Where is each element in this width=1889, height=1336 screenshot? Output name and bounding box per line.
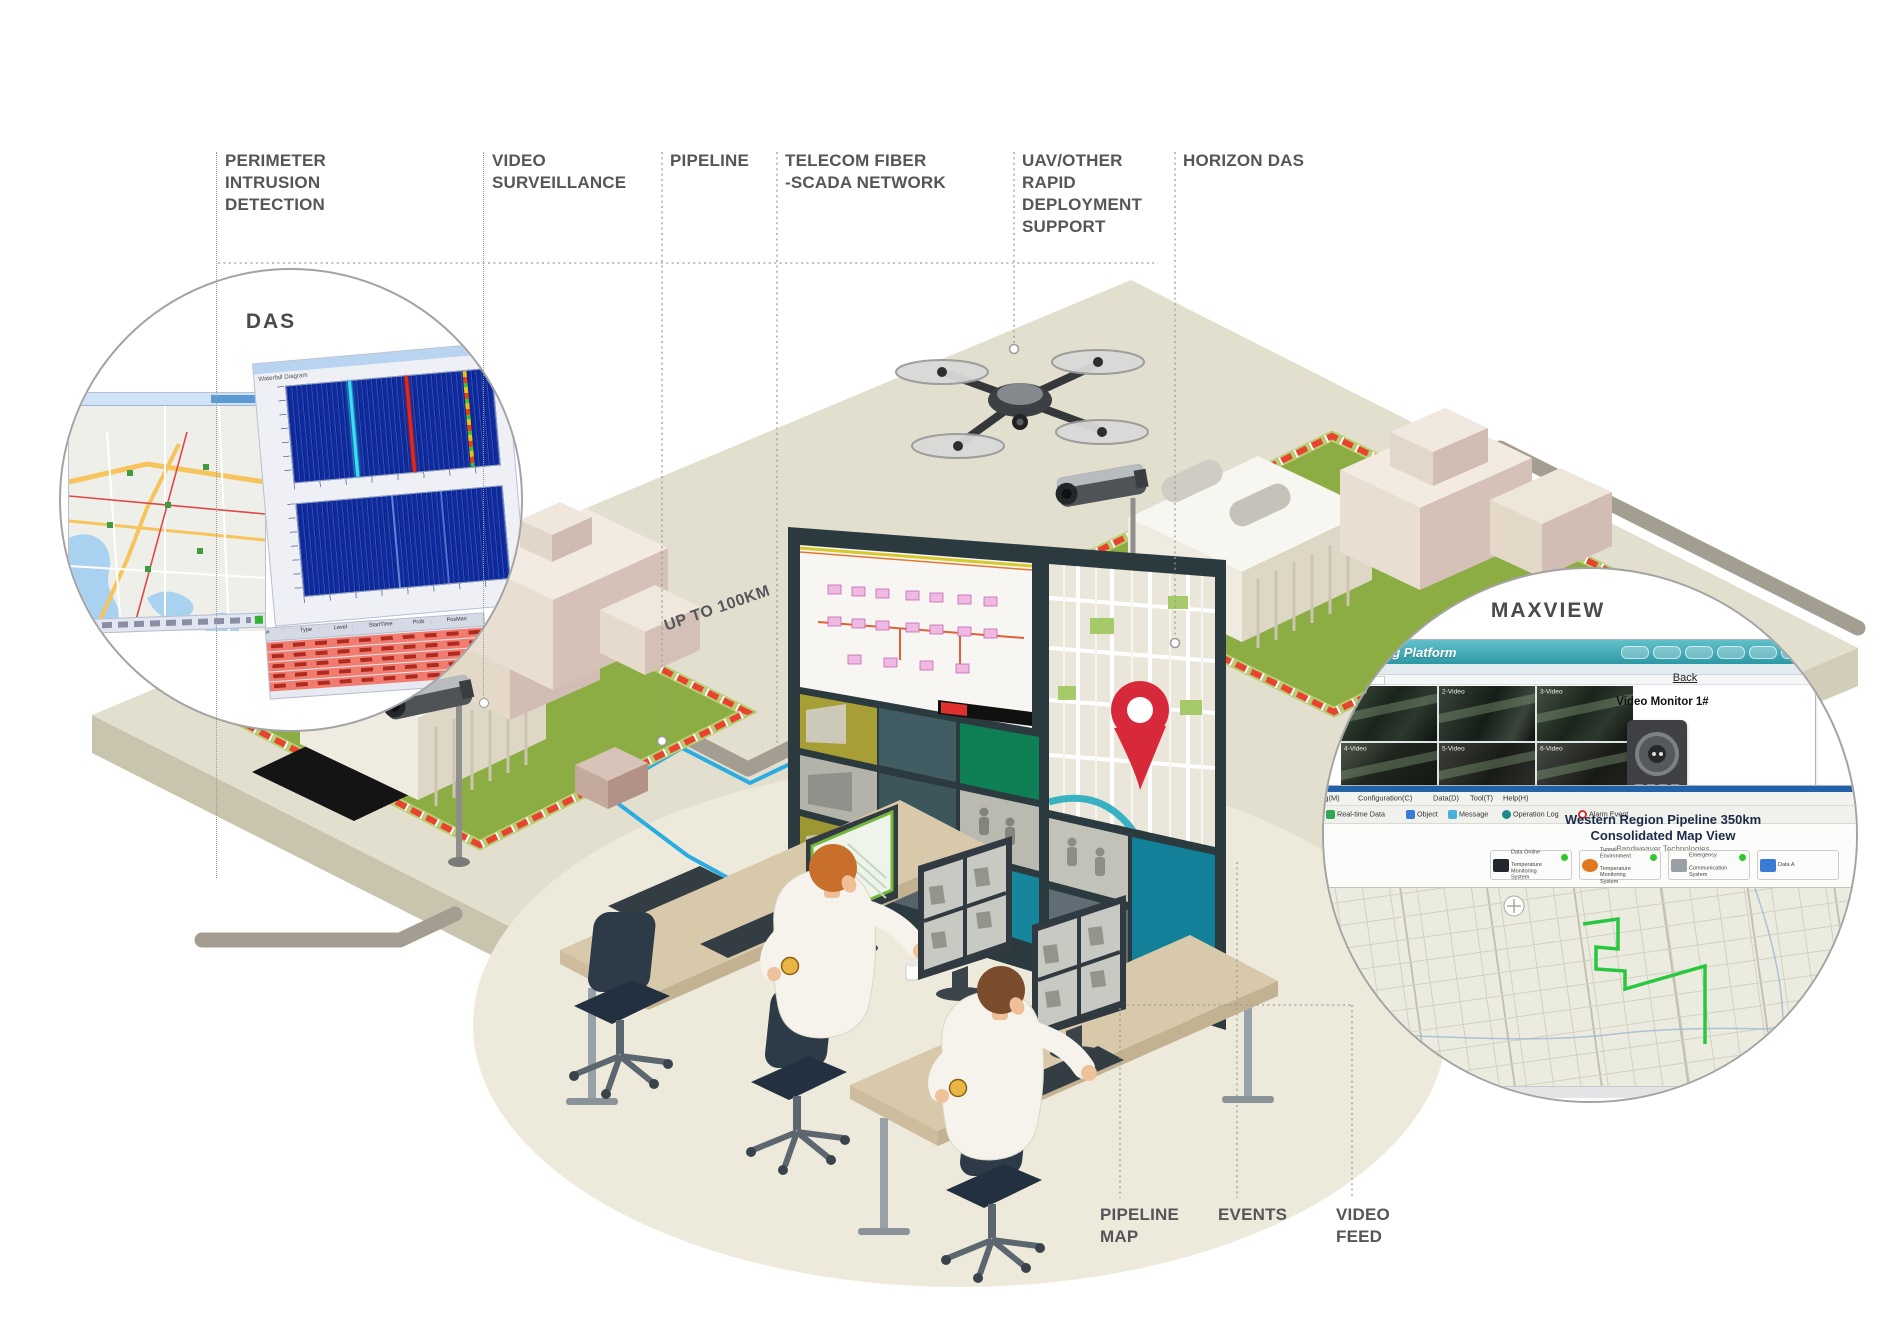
menu-item[interactable]: Help(H)	[1503, 794, 1528, 802]
camera-icon	[1582, 859, 1598, 872]
col-prob: Prob	[412, 618, 431, 626]
window-titlebar: Monitoring Platform	[1322, 640, 1815, 664]
label-pipeline-map: PIPELINE MAP	[1100, 1204, 1210, 1248]
map-view-window: File(F) Monitoring(M) Configuration(C) D…	[1322, 785, 1858, 1103]
das-callout: DAS	[59, 268, 523, 732]
toolbar-item-realtime-data[interactable]: Real-time Data	[1326, 809, 1404, 820]
ptz-joystick-control[interactable]	[1627, 720, 1687, 794]
maxview-title: MAXVIEW	[1448, 599, 1648, 623]
status-ok-icon	[255, 616, 263, 624]
video-tile-label: 3-Video	[1540, 688, 1563, 695]
monitor-icon	[1493, 859, 1509, 872]
titlebar-buttons	[1621, 646, 1809, 659]
message-icon	[1448, 810, 1457, 819]
status-card-emergency-comms[interactable]: Emergency Communication System	[1668, 850, 1750, 880]
video-tile[interactable]: 3-Video	[1537, 686, 1633, 741]
pipeline-security-diagram: PERIMETER INTRUSION DETECTION VIDEO SURV…	[0, 0, 1889, 1336]
maxview-callout: MAXVIEW Monitoring Platform 1-Video	[1322, 567, 1858, 1103]
label-pipeline: PIPELINE	[670, 150, 770, 172]
status-green-dot	[1739, 854, 1746, 861]
toolbar-pill-button[interactable]	[1653, 646, 1681, 659]
das-title: DAS	[211, 310, 331, 334]
label-video-feed: VIDEO FEED	[1336, 1204, 1436, 1248]
map-view-titles: Western Region Pipeline 350km Consolidat…	[1498, 812, 1828, 856]
window-status-bar	[1322, 1086, 1858, 1098]
label-telecom-fiber-scada: TELECOM FIBER -SCADA NETWORK	[785, 150, 950, 194]
label-video-surveillance: VIDEO SURVEILLANCE	[492, 150, 632, 194]
col-posmax: PosMax	[446, 616, 467, 624]
toolbar-pill-button[interactable]	[1781, 646, 1809, 659]
chart-icon	[1326, 810, 1335, 819]
das-map-window	[68, 392, 266, 631]
map-view-title-line1: Western Region Pipeline 350km	[1498, 812, 1828, 828]
status-green-dot	[1650, 854, 1657, 861]
consolidated-map[interactable]	[1322, 887, 1858, 1098]
map-view-title-line2: Consolidated Map View	[1498, 828, 1828, 844]
video-tile[interactable]: 2-Video	[1439, 686, 1535, 741]
menu-bar: File(F) Monitoring(M) Configuration(C) D…	[1322, 792, 1858, 806]
shoulder-badge-icon	[950, 1080, 967, 1097]
cctv-video-grid: 1-Video 2-Video 3-Video 4-Video 5-Video …	[1341, 686, 1633, 798]
coffee-cup	[906, 961, 919, 980]
joystick-center[interactable]	[1648, 745, 1666, 763]
leader-video-surveillance	[483, 152, 484, 700]
menu-item[interactable]: Configuration(C)	[1358, 794, 1412, 802]
back-link[interactable]: Back	[1650, 672, 1720, 684]
video-tile-label: 6-Video	[1540, 745, 1563, 752]
pipeline-route-line	[1583, 919, 1705, 1044]
toolbar-item-object[interactable]: Object	[1406, 809, 1446, 820]
label-uav-rapid-deployment: UAV/OTHER RAPID DEPLOYMENT SUPPORT	[1022, 150, 1152, 238]
data-icon	[1760, 859, 1776, 872]
video-tile-label: 4-Video	[1344, 745, 1367, 752]
toolbar-pill-button[interactable]	[1685, 646, 1713, 659]
label-horizon-das: HORIZON DAS	[1183, 150, 1323, 172]
das-spectrogram-label: Waterfall Diagram	[258, 372, 308, 383]
status-card-data-access[interactable]: Data A	[1757, 850, 1839, 880]
col-starttime: StartTime	[368, 621, 393, 629]
col-index: #	[266, 628, 285, 636]
col-level: Level	[334, 623, 353, 631]
toolbar-pill-button[interactable]	[1717, 646, 1745, 659]
video-tile-label: 2-Video	[1442, 688, 1465, 695]
col-type: Type	[300, 626, 319, 634]
tab-strip	[1322, 675, 1815, 685]
video-monitor-label: Video Monitor 1#	[1595, 696, 1730, 708]
das-map-titlebar	[69, 393, 265, 406]
shoulder-badge-icon	[782, 958, 799, 975]
object-icon	[1406, 810, 1415, 819]
toolbar-pill-button[interactable]	[1621, 646, 1649, 659]
toolbar-item-user-login[interactable]: User Login	[1322, 809, 1324, 820]
status-green-dot	[1561, 854, 1568, 861]
waterfall-panel-1	[285, 368, 501, 484]
status-card-data-online[interactable]: Data Online Temperature Monitoring Syste…	[1490, 850, 1572, 880]
video-tile-label: 5-Video	[1442, 745, 1465, 752]
device-icon	[1671, 859, 1687, 872]
leader-perimeter	[216, 152, 217, 878]
das-alarm-table: # Type Level StartTime Prob PosMax	[265, 612, 489, 699]
waterfall-panel-2	[295, 485, 510, 597]
toolbar-pill-button[interactable]	[1749, 646, 1777, 659]
das-city-map	[69, 406, 265, 631]
label-perimeter-intrusion-detection: PERIMETER INTRUSION DETECTION	[225, 150, 410, 216]
system-status-cards: Data Online Temperature Monitoring Syste…	[1490, 850, 1842, 880]
window-title: Monitoring Platform	[1333, 645, 1457, 660]
menu-item[interactable]: Monitoring(M)	[1322, 794, 1340, 802]
status-card-tunnel-environment[interactable]: Tunnel Environment Temperature Monitorin…	[1579, 850, 1661, 880]
video-tile-label: 1-Video	[1344, 688, 1367, 695]
menu-item[interactable]: Tool(T)	[1470, 794, 1493, 802]
active-tab[interactable]	[1339, 676, 1385, 685]
toolbar-item-message[interactable]: Message	[1448, 809, 1500, 820]
label-events: EVENTS	[1218, 1204, 1318, 1226]
monitoring-platform-window: Monitoring Platform 1-Video 2-Video	[1322, 639, 1816, 801]
pipeline-route-map	[1322, 888, 1858, 1098]
sub-toolbar	[1322, 664, 1815, 675]
video-tile[interactable]: 1-Video	[1341, 686, 1437, 741]
leader-end-marker	[479, 698, 489, 708]
menu-item[interactable]: Data(D)	[1433, 794, 1459, 802]
